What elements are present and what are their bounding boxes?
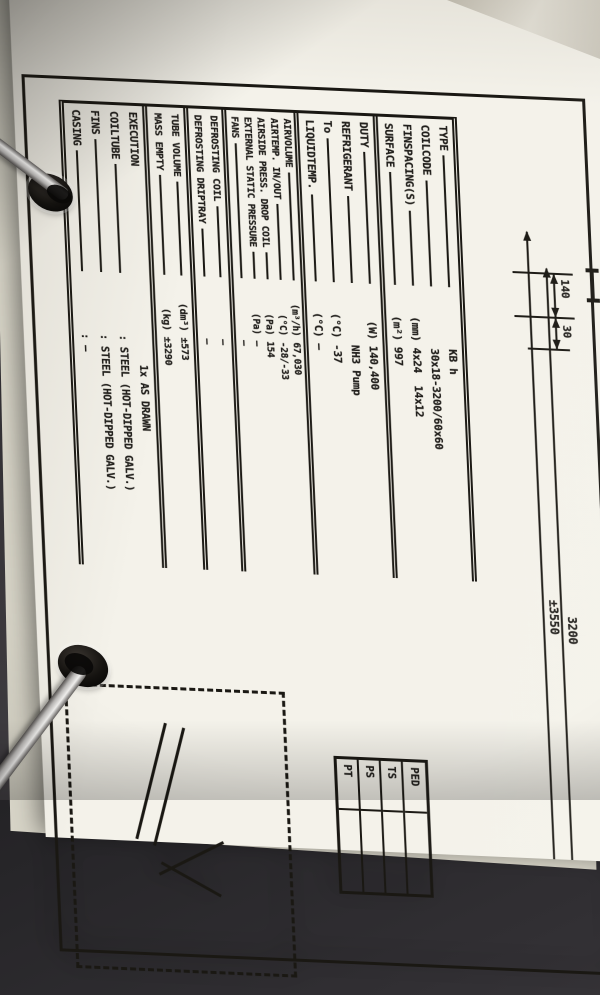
spec-row-unit [218,281,220,333]
spec-row-unit: (°C) [307,285,327,338]
photo-of-binder-page: { "spec_table": { "sections": [ {"rows":… [0,0,600,800]
spec-row-unit [132,175,134,227]
spec-row-unit: (mm) [404,289,424,342]
dimension-label-140: 140 [558,279,572,299]
leader-line [327,138,335,282]
leader-line [311,194,317,281]
spec-row-label: AIRVOLUME [280,118,295,167]
leader-line [425,180,432,286]
spec-row-unit: (m²) [386,288,406,341]
leader-line [288,172,295,280]
drawing-sheet: TYPEKB hCOILCODE30x18-3200/60x60FINSPACI… [7,0,600,862]
spec-row-label: TYPE [433,125,452,151]
ped-table: PED TS PS PT [333,756,433,898]
leader-line [176,182,182,276]
spec-row-label: LIQUIDTEMP. [300,119,321,189]
spec-row-label: CASING [65,109,86,146]
dimension-label-3550: ±3550 [546,600,562,635]
spec-row-unit: (kg) [155,278,174,331]
sketch-line [159,841,225,876]
spec-row-unit [239,282,241,334]
leader-line [389,172,396,285]
spec-row-unit: (Pa) [261,283,276,336]
leader-line [94,139,102,272]
ped-cell-ts: TS [381,761,403,813]
spec-row-label: FANS [227,116,241,138]
spec-row-label: COILTUBE [103,111,124,160]
sketch-line [161,861,222,897]
spec-row-unit [349,287,351,339]
dimension-label-3200: 3200 [565,616,580,644]
sketch-line [135,723,167,840]
spec-row-unit [117,277,119,329]
beam-end-symbol [585,268,600,303]
leader-line [442,156,450,288]
leader-line [76,150,83,271]
spec-row-unit: (W) [361,287,381,340]
spec-row-label: REFRIGERANT [336,121,357,191]
leader-line [252,252,255,279]
leader-line [265,252,268,279]
leader-line [363,152,371,284]
spec-row-unit [98,276,100,328]
spec-row-unit: (°C) [325,286,345,339]
ped-cell-pt: PT [337,759,359,811]
spec-row-unit: (°C) [274,284,289,337]
leader-line [409,211,414,286]
spec-row-label: COILCODE [415,124,435,175]
leader-line [276,204,281,280]
spec-row-label: DUTY [354,122,373,148]
spec-row-label: EXECUTION [122,111,143,166]
spec-row-unit [428,290,430,342]
leader-line [159,175,165,275]
leader-line [235,143,243,278]
spec-row-unit [202,280,204,332]
spec-table: TYPEKB hCOILCODE30x18-3200/60x60FINSPACI… [59,100,477,582]
leader-line [202,228,206,276]
spec-row-label: To [318,120,337,133]
spec-row-unit [446,291,448,343]
spec-row-unit: (Pa) [248,282,263,335]
leader-line [347,196,353,283]
spec-row-label: FINS [84,110,104,135]
spec-row-label: MASS EMPTY [148,113,168,171]
detail-boundary-box [64,682,297,977]
spec-row-unit: (m³/h) [287,284,302,337]
ped-cell-ps: PS [359,760,381,812]
spec-row-label: FINSPACING(S) [397,123,419,206]
spec-row-label: TUBE VOLUME [165,113,185,177]
spec-row-unit [79,275,81,327]
leader-line [114,164,121,273]
dimension-label-30: 30 [560,325,574,338]
spec-row-unit: (dm³) [173,279,192,332]
leader-line [216,206,221,277]
ped-header-cell: PED [403,762,427,814]
spec-row-label: SURFACE [379,123,399,168]
